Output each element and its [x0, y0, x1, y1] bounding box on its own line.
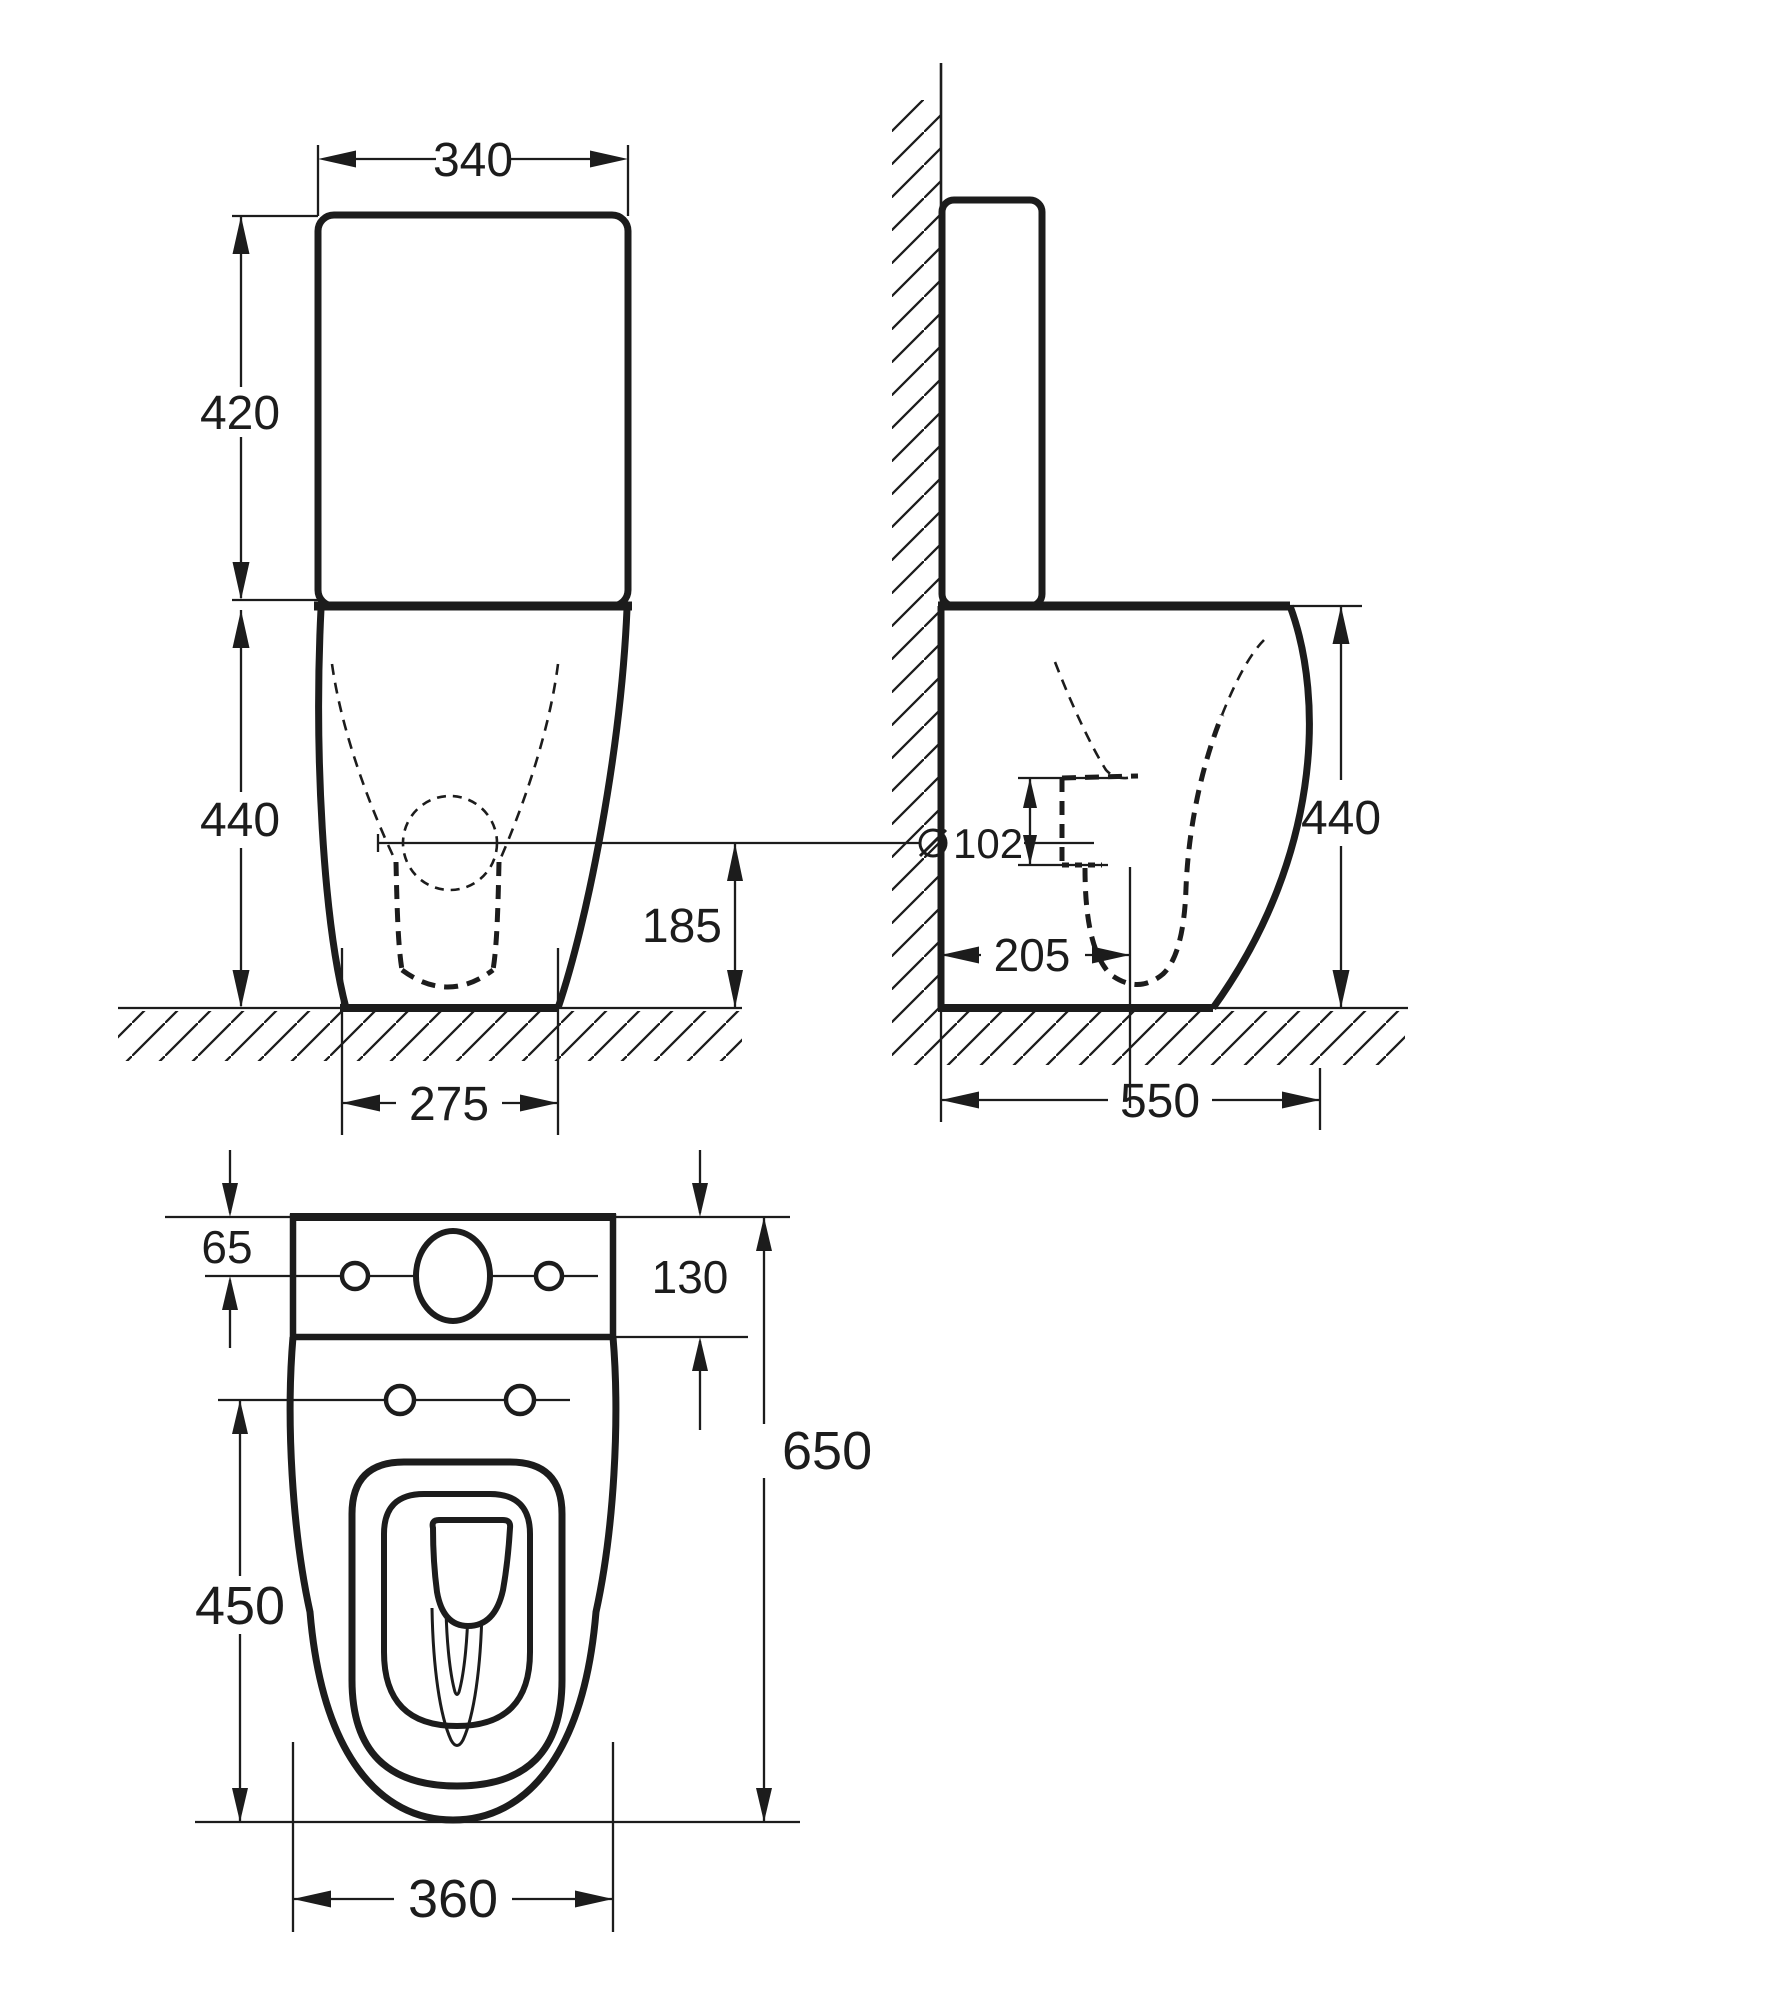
seat-fixing-hole-right	[506, 1386, 534, 1414]
dim-label-340: 340	[433, 134, 513, 187]
cistern-fixing-hole-right	[536, 1263, 562, 1289]
dim-label-440-side: 440	[1301, 792, 1381, 845]
arrowhead-down-icon	[1023, 835, 1037, 865]
technical-drawing-page: 340 420 440	[0, 0, 1765, 1999]
dim-top-overall-length: 650	[756, 1217, 872, 1822]
dim-label-420: 420	[200, 387, 280, 440]
arrowhead-down-icon	[756, 1788, 772, 1822]
arrowhead-right-icon	[520, 1095, 558, 1112]
seat-fixing-hole-left	[386, 1386, 414, 1414]
arrowhead-up-icon	[1023, 778, 1037, 808]
cistern-fixing-hole-left	[342, 1263, 368, 1289]
dim-label-205: 205	[994, 929, 1071, 981]
pan-internal-outline-side	[1055, 640, 1264, 985]
dim-label-275: 275	[409, 1078, 489, 1131]
arrowhead-right-icon	[575, 1891, 613, 1908]
cistern-side-outline	[942, 200, 1042, 606]
arrowhead-left-icon	[342, 1095, 380, 1112]
cistern-front-outline	[318, 215, 628, 606]
dim-label-360: 360	[408, 1869, 498, 1929]
arrowhead-down-icon	[233, 970, 250, 1008]
arrowhead-up-icon	[727, 843, 743, 881]
pan-internal-outline	[332, 664, 558, 987]
dim-label-102: 102	[953, 820, 1023, 867]
toilet-dimension-drawing: 340 420 440	[0, 0, 1765, 1999]
floor-hatch	[941, 1011, 1405, 1065]
dim-front-pan-height: 440	[200, 610, 280, 1008]
arrowhead-left-icon	[293, 1891, 331, 1908]
arrowhead-down-icon	[692, 1183, 708, 1217]
arrowhead-down-icon	[1333, 970, 1350, 1008]
dim-top-overall-width: 360	[293, 1742, 613, 1932]
arrowhead-left-icon	[318, 151, 356, 168]
dim-label-450: 450	[195, 1576, 285, 1636]
arrowhead-left-icon	[941, 1092, 979, 1109]
arrowhead-left-icon	[941, 947, 979, 964]
pan-right-edge	[558, 609, 627, 1008]
front-view: 340 420 440	[118, 134, 743, 1135]
dim-top-lid-to-holes: 65	[201, 1150, 252, 1348]
arrowhead-down-icon	[222, 1183, 238, 1217]
flush-button	[416, 1231, 490, 1321]
dim-label-130: 130	[652, 1251, 729, 1303]
arrowhead-up-icon	[222, 1276, 238, 1310]
dim-side-setout: 205	[941, 867, 1130, 1108]
arrowhead-right-icon	[590, 151, 628, 168]
arrowhead-up-icon	[1333, 606, 1350, 644]
dim-label-65: 65	[201, 1221, 252, 1273]
top-view: 65 130 450	[165, 1150, 872, 1932]
dim-front-trap-height: 185	[642, 843, 743, 1008]
dim-front-overall-width: 340	[318, 134, 628, 216]
pan-front-edge	[1213, 606, 1309, 1008]
arrowhead-down-icon	[727, 970, 743, 1008]
arrowhead-right-icon	[1092, 947, 1130, 964]
bowl-back-outline	[1222, 640, 1264, 715]
floor-hatch	[118, 1011, 742, 1061]
dim-front-cistern-height: 420	[200, 216, 318, 600]
arrowhead-up-icon	[692, 1337, 708, 1371]
dim-label-440-front: 440	[200, 794, 280, 847]
trap-outline	[1085, 715, 1222, 985]
dim-top-seat-length: 450	[195, 1400, 285, 1822]
dim-top-cistern-depth: 130	[613, 1150, 748, 1430]
arrowhead-down-icon	[233, 562, 250, 600]
arrowhead-up-icon	[233, 610, 250, 648]
arrowhead-right-icon	[1282, 1092, 1320, 1109]
dim-side-outlet-diameter: 102	[920, 778, 1108, 867]
side-view: 102 205 440	[892, 63, 1408, 1130]
arrowhead-down-icon	[232, 1788, 248, 1822]
dim-label-185: 185	[642, 900, 722, 953]
dim-label-550: 550	[1120, 1075, 1200, 1128]
wall-hatch	[892, 100, 941, 1065]
dim-label-650: 650	[782, 1421, 872, 1481]
arrowhead-up-icon	[233, 216, 250, 254]
flush-water-spot	[433, 1520, 511, 1626]
